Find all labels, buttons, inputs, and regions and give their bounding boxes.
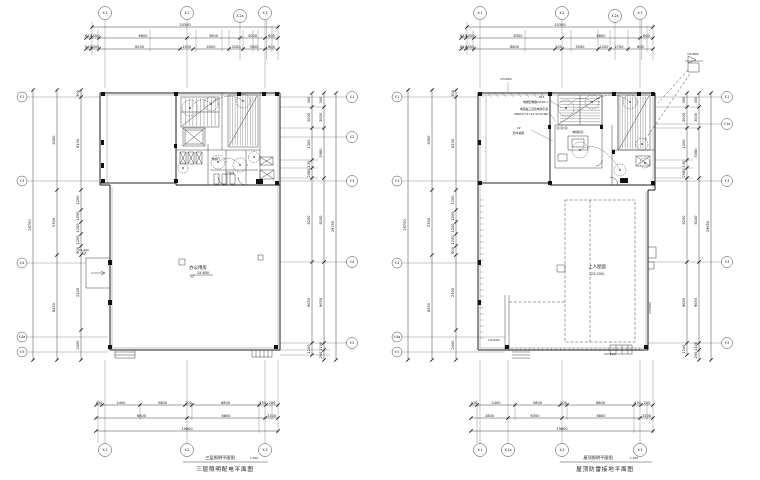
grid-bubble-label: Y-5 (20, 350, 25, 354)
fixture-center-dot (641, 143, 643, 145)
column-block (108, 345, 112, 349)
flag-leader-lines (645, 70, 690, 140)
column-block (274, 345, 278, 349)
column-block (101, 179, 105, 183)
dimension-text: 8100 (319, 216, 323, 225)
grid-bubble-label: Y-4a (19, 335, 26, 339)
dimension-text: 8300 (427, 136, 431, 145)
column-block (174, 144, 177, 148)
column-block (101, 140, 104, 145)
dimension-text: 5080 (694, 149, 698, 158)
dimension-text: 1300 (307, 140, 311, 149)
dimension-text: 29650 (706, 221, 710, 232)
dimension-text: 8800 (597, 414, 606, 418)
grid-bubble-label: Y-4 (20, 261, 25, 265)
dimension-text: 1500 (466, 45, 475, 49)
extension-lines (27, 20, 722, 443)
right-title: 屋顶照明平面图 (583, 455, 612, 461)
column-block (612, 150, 615, 154)
dimension-text: 1200 (600, 45, 609, 49)
dimension-text: 5300 (427, 218, 431, 227)
right-title-scale: 1:100 (630, 456, 638, 460)
column-block (651, 92, 655, 96)
column-block (101, 163, 104, 168)
dimension-text: 2080 (307, 169, 311, 178)
dimension-text: 2400 (492, 401, 501, 405)
grid-bubble-label: Y-3 (725, 179, 730, 183)
left-bay-elevation: 11.000 (79, 248, 89, 252)
dimension-text: 2400 (117, 401, 126, 405)
annotation-1-line-1: AP1 (539, 95, 545, 99)
column-block (262, 92, 266, 96)
dimension-text: 1500 (76, 212, 80, 221)
dimension-text: 2800 (485, 414, 494, 418)
right-elev-right-edge: (23.950) (648, 302, 652, 314)
left-room-elevation: 15.600 (197, 271, 209, 275)
left-room-label: 办公用房 (189, 264, 207, 271)
dimension-text: 19800 (556, 427, 567, 431)
right-roof-dashed-outline (509, 200, 635, 342)
right-subtitle: 屋顶防雷接地平面图 (576, 465, 634, 473)
grid-bubble-label: X-2 (559, 11, 564, 15)
column-block (108, 300, 112, 305)
dimension-text: 9050 (319, 298, 323, 307)
dimension-text: 600 (268, 45, 275, 49)
dimension-text: 430 (96, 401, 103, 405)
dimension-text: 29750 (28, 219, 32, 230)
grid-bubble-label: X-2 (184, 448, 189, 452)
column-block (108, 260, 112, 265)
right-plan-inner-walls (480, 95, 653, 348)
dimension-text: 8200 (307, 216, 311, 225)
column-block (651, 181, 655, 185)
dimension-text: 200 (319, 352, 323, 359)
dimension-text: 3200 (267, 414, 276, 418)
dimension-text: 2400 (451, 341, 455, 350)
dimension-text: 1100 (694, 342, 698, 351)
dimension-text: 300 (307, 97, 311, 104)
dimension-text: 2080 (682, 169, 686, 178)
dimension-text: 300 (319, 97, 323, 104)
dimension-text: 8800 (597, 34, 606, 38)
fixture-center-dot (242, 100, 244, 102)
column-block (478, 300, 481, 305)
dimension-text: 200 (269, 401, 276, 405)
dimension-text: 29750 (331, 221, 335, 232)
annotation-2-line-1: 电源由三层强电井引来 (520, 107, 548, 111)
column-block (600, 125, 603, 129)
grid-bubble-label: X-1 (477, 11, 482, 15)
annotation-1-line-2: 电梯配电箱AP-DT-1 (523, 100, 548, 104)
dimension-text: 8100 (76, 139, 80, 148)
dimension-text: 1200 (451, 236, 455, 245)
switch-dot (565, 127, 567, 129)
grid-bubble-label: Y-1 (725, 95, 730, 99)
dimension-text: 2700 (615, 45, 624, 49)
grid-bubble-label: X-3 (637, 448, 642, 452)
grid-bubble-label: X-2a (237, 14, 244, 18)
column-block (174, 92, 178, 96)
dimension-text: 8100 (694, 216, 698, 225)
column-block (478, 181, 482, 185)
dimension-text: 1100 (307, 345, 311, 354)
dimension-text: 20300 (179, 23, 190, 27)
dimension-text: 5500 (576, 45, 585, 49)
dimension-text: 300 (682, 97, 686, 104)
dimension-text: 6800 (139, 34, 148, 38)
dimension-text: 1500 (451, 212, 455, 221)
grid-bubble-label: Y-4 (725, 260, 730, 264)
right-room-elevation: (23.200) (590, 272, 606, 276)
dimension-text: 1100 (319, 342, 323, 351)
dimension-text: 200 (555, 45, 562, 49)
column-block (548, 125, 551, 129)
dimension-text: 430 (471, 401, 478, 405)
fixture-center-dot (253, 156, 255, 158)
right-elev-flag: (25.600) (687, 52, 699, 56)
grid-bubble-label: X-2 (559, 448, 564, 452)
column-block (478, 140, 481, 145)
dimension-text: 300 (76, 90, 80, 97)
grid-bubble-label: Y-4 (395, 261, 400, 265)
grid-bubble-label: Y-1a (724, 122, 731, 126)
grid-bubble-label: X-1 (102, 11, 107, 15)
column-block (505, 345, 509, 349)
dimension-text: 6300 (531, 414, 540, 418)
dimension-text: 3000 (319, 113, 323, 122)
grid-bubble-label: Y-4a (394, 335, 401, 339)
grid-bubble-label: Y-4 (350, 260, 355, 264)
switch-dot (557, 127, 559, 129)
left-title-scale: 1:100 (250, 456, 258, 460)
column-block (548, 92, 552, 96)
dimension-text: 2400 (76, 341, 80, 350)
grid-bubble-label: X-1a (505, 448, 512, 452)
grid-bubble-label: Y-5 (725, 341, 730, 345)
dimension-text: 8300 (514, 34, 523, 38)
grid-bubble-label: Y-1 (350, 95, 355, 99)
dimension-text: 6200 (135, 45, 144, 49)
grid-bubble-label: X-3 (262, 11, 267, 15)
left-core-label-2: 卫生间 (226, 171, 235, 175)
fixture-center-dot (644, 162, 646, 164)
dimension-text: 3000 (250, 45, 259, 49)
dimension-text: 19800 (181, 427, 192, 431)
dimension-text: 20300 (554, 23, 565, 27)
dimension-text: 6800 (137, 414, 146, 418)
dimension-text: 9050 (682, 298, 686, 307)
right-elev-top-left: (23.600) (500, 77, 512, 81)
fixture-center-dot (239, 164, 241, 166)
dimension-text: 130 (682, 161, 686, 168)
cad-canvas: 2030064015006800580030006006401500620013… (0, 0, 760, 480)
right-room-label: 上人屋面 (588, 263, 606, 270)
grid-bubble-label: Y-5 (350, 341, 355, 345)
dimension-text: 9050 (694, 298, 698, 307)
grid-bubble-label: Y-5 (395, 350, 400, 354)
dimension-text: 8200 (682, 216, 686, 225)
dimension-text: 8450 (52, 303, 56, 312)
dimension-text: 3000 (694, 113, 698, 122)
right-core-panel-box (620, 178, 628, 183)
dimension-text: 1300 (182, 45, 191, 49)
grid-bubble-label: X-2a (612, 14, 619, 18)
grid-bubble-label: Y-1 (20, 95, 25, 99)
dimension-text: 1200 (76, 224, 80, 233)
dimension-text: 9050 (307, 298, 311, 307)
dimension-text: 130 (307, 161, 311, 168)
dimension-text: 1200 (451, 196, 455, 205)
dimension-text: 1200 (76, 196, 80, 205)
dimension-text: 600 (268, 34, 275, 38)
wiring-arcs (190, 95, 630, 170)
annotation-3-line-1: 1P (517, 126, 521, 130)
dimension-text: 530 (259, 401, 266, 405)
dimension-text: 3000 (248, 34, 257, 38)
dimension-text: 200 (644, 401, 651, 405)
dimension-text: 3000 (682, 113, 686, 122)
column-block (237, 92, 241, 96)
dimension-text: 6800 (221, 401, 230, 405)
grid-bubble-label: Y-2 (350, 135, 355, 139)
dimension-text: 200 (694, 352, 698, 359)
dimension-text: 300 (451, 90, 455, 97)
dimension-text: 29750 (403, 219, 407, 230)
column-block (478, 92, 482, 96)
column-block (637, 92, 641, 96)
grid-bubble-label: X-3 (637, 11, 642, 15)
dimension-text: 200 (185, 401, 192, 405)
dimension-text: 600 (643, 34, 650, 38)
right-elev-bottom-right: (23.950) (604, 352, 616, 356)
grid-bubble-label: Y-3 (20, 179, 25, 183)
fixture-center-dot (182, 167, 184, 169)
dimension-text: 530 (634, 401, 641, 405)
dimension-text: 4500 (207, 45, 216, 49)
dimension-text: 8300 (52, 136, 56, 145)
dimension-text: 5300 (52, 218, 56, 227)
dimension-text: 1300 (682, 140, 686, 149)
column-block (275, 181, 279, 185)
dimension-text: 900 (451, 247, 455, 254)
column-block (478, 260, 481, 265)
left-subtitle: 三层照明配电平面图 (196, 465, 254, 473)
dimension-text: 2100 (76, 288, 80, 297)
dimension-text: 8100 (451, 139, 455, 148)
dimension-text: 5800 (158, 401, 167, 405)
dimension-text: 3000 (307, 113, 311, 122)
dimension-text: 1500 (466, 34, 475, 38)
column-block (174, 179, 178, 183)
drawing-sheet: 2030064015006800580030006006401500620013… (0, 0, 760, 480)
dimension-text: 3200 (232, 45, 241, 49)
left-core-label-1: 电梯厅 (212, 157, 221, 161)
dimension-text: 2100 (451, 288, 455, 297)
dimension-text: 1500 (91, 45, 100, 49)
dimension-text: 8450 (427, 303, 431, 312)
left-plan-inner-walls (102, 95, 278, 348)
dimension-text: 5800 (533, 401, 542, 405)
column-block (101, 92, 105, 96)
column-block (275, 92, 279, 96)
dimension-text: 1200 (76, 236, 80, 245)
dimension-text: 5800 (209, 34, 218, 38)
column-block (548, 181, 552, 185)
left-title: 三层照明平面图 (205, 455, 234, 461)
left-core-panel-box (256, 179, 263, 184)
dimension-text: 1500 (91, 34, 100, 38)
dimension-text: 600 (637, 45, 644, 49)
grid-bubble-label: Y-3 (350, 179, 355, 183)
annotation-3-line-2: 防水插座 (513, 131, 524, 135)
grid-bubble-label: X-2 (184, 11, 189, 15)
right-plan-outer-walls (478, 93, 655, 350)
machine-room-label: 电梯机房 (572, 130, 583, 134)
dimension-text: 200 (560, 401, 567, 405)
column-block (644, 345, 648, 349)
dimension-text: 5080 (319, 149, 323, 158)
dimension-text: 3200 (642, 414, 651, 418)
right-elev-bottom-left: (23.950) (488, 338, 500, 342)
column-block (612, 92, 616, 96)
grid-bubble-label: X-1 (477, 448, 482, 452)
switch-dot (561, 127, 563, 129)
dimension-text: 6800 (222, 414, 231, 418)
dimension-text: 1200 (451, 224, 455, 233)
grid-bubble-label: Y-3 (395, 179, 400, 183)
dimension-text: 8800 (596, 401, 605, 405)
grid-bubble-label: Y-1 (395, 95, 400, 99)
grid-bubble-label: X-1 (102, 448, 107, 452)
annotation-2-line-2: WDZ-YJY-4×10-SC32-WE (514, 112, 548, 116)
dimension-text: 8600 (510, 45, 519, 49)
dimension-text: 300 (694, 97, 698, 104)
dimension-text: 1100 (682, 345, 686, 354)
grid-bubble-label: X-3 (262, 448, 267, 452)
